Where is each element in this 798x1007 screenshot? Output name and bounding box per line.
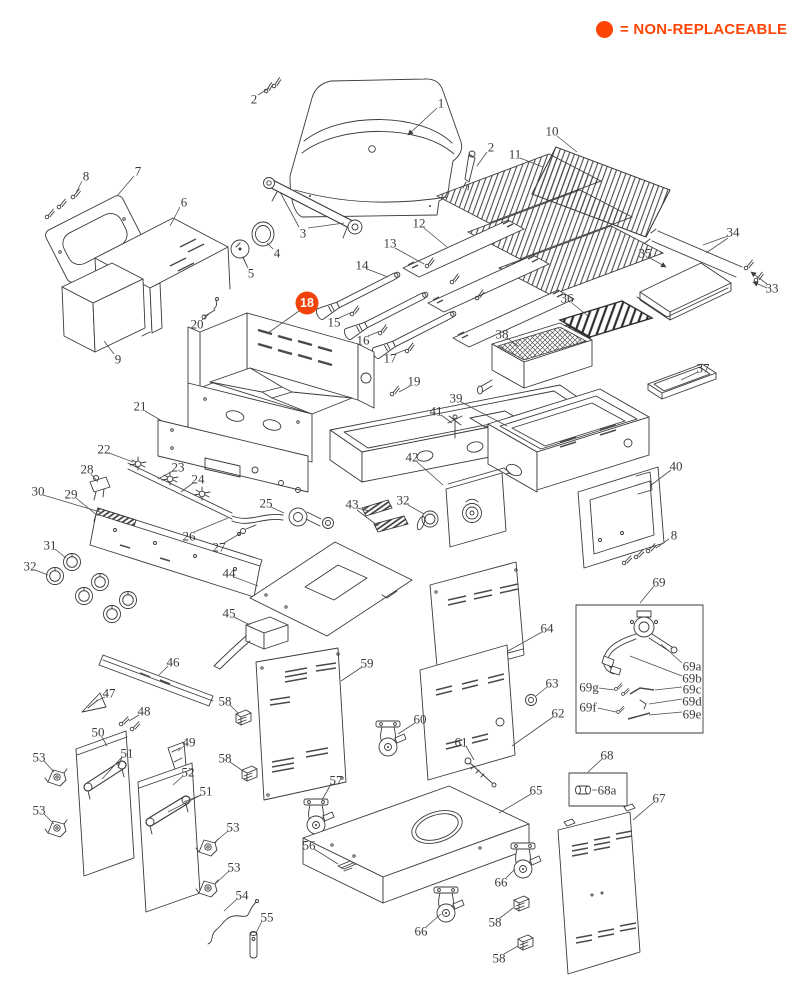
leader-line-17 [395, 350, 405, 354]
part-label-68: 68 [601, 748, 614, 763]
part-55-pin [250, 932, 257, 959]
part-label-69: 69 [653, 575, 666, 590]
part-label-32: 32 [397, 493, 410, 508]
part-label-56: 56 [303, 838, 317, 853]
part-label-43: 43 [346, 497, 359, 512]
part-label-8: 8 [83, 169, 90, 184]
part-46-cross-bar [99, 655, 213, 706]
part-label-37: 37 [697, 361, 711, 376]
part-label-16: 16 [357, 333, 371, 348]
leader-line-4 [267, 243, 273, 249]
part-label-29: 29 [65, 487, 78, 502]
part-label-65: 65 [530, 783, 543, 798]
leader-line-16 [368, 332, 378, 336]
part-label-2: 2 [488, 140, 495, 155]
leader-line-26 [194, 518, 228, 532]
part-42-grease-box [446, 468, 510, 547]
part-label-5: 5 [248, 266, 255, 281]
part-label-58: 58 [219, 751, 232, 766]
leader-line-58 [504, 946, 518, 954]
part-label-12: 12 [413, 216, 426, 231]
part-label-50: 50 [92, 725, 105, 740]
leader-line-13 [395, 248, 424, 264]
part-52-right-door [138, 763, 200, 912]
leader-line-2 [477, 152, 487, 166]
part-label-10: 10 [546, 124, 559, 139]
legend: = NON-REPLACEABLE [596, 21, 787, 38]
part-label-6: 6 [181, 195, 188, 210]
part-label-44: 44 [223, 566, 237, 581]
leader-line-3 [308, 223, 344, 228]
part-label-58: 58 [489, 915, 502, 930]
part-label-53: 53 [33, 750, 46, 765]
part-label-21: 21 [134, 399, 147, 414]
part-1-lid [290, 79, 462, 217]
part-label-14: 14 [356, 258, 370, 273]
part-19-bolt [388, 386, 400, 396]
part-35-griddle-plate [637, 263, 731, 320]
part-label-67: 67 [653, 791, 667, 806]
part-label-33: 33 [766, 281, 779, 296]
leader-line-14 [367, 269, 388, 277]
part-label-22: 22 [98, 442, 111, 457]
part-label-40: 40 [670, 459, 683, 474]
part-label-58: 58 [219, 694, 232, 709]
part-label-13: 13 [384, 236, 397, 251]
leader-line-59 [341, 667, 362, 681]
part-label-51: 51 [121, 746, 134, 761]
part-label-20: 20 [191, 317, 204, 332]
part-40-side-panel-right [578, 467, 664, 568]
part-label-36: 36 [561, 291, 575, 306]
part-label-1: 1 [438, 96, 445, 111]
leader-line-66 [426, 914, 441, 927]
part-label-9: 9 [115, 352, 122, 367]
leader-line-15 [339, 313, 350, 318]
leader-line-8 [76, 181, 82, 193]
leader-line-53 [44, 814, 54, 824]
part-label-59: 59 [361, 656, 374, 671]
part-label-24: 24 [192, 472, 206, 487]
part-label-48: 48 [138, 704, 151, 719]
leader-line-58 [230, 762, 243, 771]
part-32-knob-right [416, 511, 438, 531]
part-label-54: 54 [236, 888, 250, 903]
leader-line-58 [500, 908, 513, 918]
part-label-46: 46 [167, 655, 181, 670]
part-label-32: 32 [24, 559, 37, 574]
part-label-3: 3 [300, 226, 307, 241]
part-29-control-panel [90, 508, 262, 597]
leader-line-7 [117, 176, 134, 196]
leader-line-25 [271, 507, 284, 513]
part-label-17: 17 [384, 351, 398, 366]
part-label-34: 34 [727, 225, 741, 240]
part-28-igniter-module [90, 476, 110, 501]
leader-line-67 [633, 802, 654, 820]
leader-line-27 [224, 533, 241, 543]
part-5-thermometer [231, 240, 249, 266]
leader-line-31 [55, 549, 66, 558]
part-label-11: 11 [509, 147, 522, 162]
exploded-diagram: 1223456788910111213141516171819202122232… [0, 0, 798, 1007]
part-31-32-knobs [47, 554, 137, 623]
part-label-23: 23 [172, 460, 185, 475]
part-label-42: 42 [406, 450, 419, 465]
part-label-27: 27 [213, 540, 227, 555]
leader-line-45 [234, 617, 250, 625]
part-label-55: 55 [261, 910, 274, 925]
part-label-45: 45 [223, 606, 236, 621]
part-label-7: 7 [135, 164, 142, 179]
leader-line-29 [76, 498, 98, 516]
part-label-53: 53 [228, 860, 241, 875]
part-label-38: 38 [496, 327, 509, 342]
part-label-69e: 69e [683, 707, 702, 722]
part-label-41: 41 [430, 404, 443, 419]
part-4-bezel-ring [252, 222, 274, 246]
part-label-64: 64 [541, 621, 555, 636]
part-label-31: 31 [44, 538, 57, 553]
legend-text: = NON-REPLACEABLE [620, 21, 787, 38]
part-label-15: 15 [328, 315, 341, 330]
leader-line-32 [408, 505, 424, 514]
leader-line-62 [512, 717, 553, 746]
part-label-28: 28 [81, 462, 94, 477]
part-label-58: 58 [493, 951, 506, 966]
part-label-69f: 69f [579, 700, 597, 715]
part-label-4: 4 [274, 246, 281, 261]
part-label-53: 53 [33, 803, 46, 818]
part-label-19: 19 [408, 374, 421, 389]
part-33-screws [742, 260, 764, 282]
part-label-66: 66 [415, 924, 429, 939]
leader-line-35 [650, 258, 666, 267]
part-label-53: 53 [227, 820, 240, 835]
part-label-63: 63 [546, 676, 559, 691]
part-label-69g: 69g [579, 680, 599, 695]
part-label-51: 51 [200, 784, 213, 799]
part-label-68a: 68a [598, 783, 617, 798]
legend-dot-icon [596, 21, 613, 38]
part-label-26: 26 [183, 529, 197, 544]
part-25-hose-regulator [232, 508, 334, 529]
part-63-cap [526, 695, 537, 706]
part-label-8: 8 [671, 528, 678, 543]
part-2-screws [262, 78, 283, 94]
part-label-60: 60 [414, 712, 427, 727]
leader-line-53 [44, 761, 54, 772]
part-label-49: 49 [183, 735, 196, 750]
part-label-30: 30 [32, 484, 45, 499]
part-label-25: 25 [260, 496, 273, 511]
leader-line-21 [145, 411, 162, 421]
part-20-igniter-wire [202, 298, 219, 320]
leader-line-65 [499, 794, 531, 813]
leader-line-22 [109, 453, 133, 462]
leader-line-12 [424, 228, 447, 247]
part-label-62: 62 [552, 706, 565, 721]
part-label-66: 66 [495, 875, 509, 890]
part-label-52: 52 [182, 765, 195, 780]
part-label-39: 39 [450, 391, 463, 406]
part-label-18: 18 [300, 296, 314, 310]
leader-line-32 [35, 570, 48, 575]
part-8-screws-left [43, 189, 81, 219]
part-label-61: 61 [455, 735, 468, 750]
part-60-caster [376, 721, 406, 756]
part-label-35: 35 [639, 246, 652, 261]
part-67-right-cart-panel [558, 804, 640, 974]
part-27-fitting [238, 525, 257, 536]
part-label-47: 47 [103, 686, 117, 701]
leader-line-60 [398, 723, 415, 734]
part-label-2: 2 [251, 92, 258, 107]
part-48-screws [118, 717, 141, 732]
part-label-57: 57 [330, 773, 344, 788]
exploded-parts-diagram-page: 1223456788910111213141516171819202122232… [0, 0, 798, 1007]
